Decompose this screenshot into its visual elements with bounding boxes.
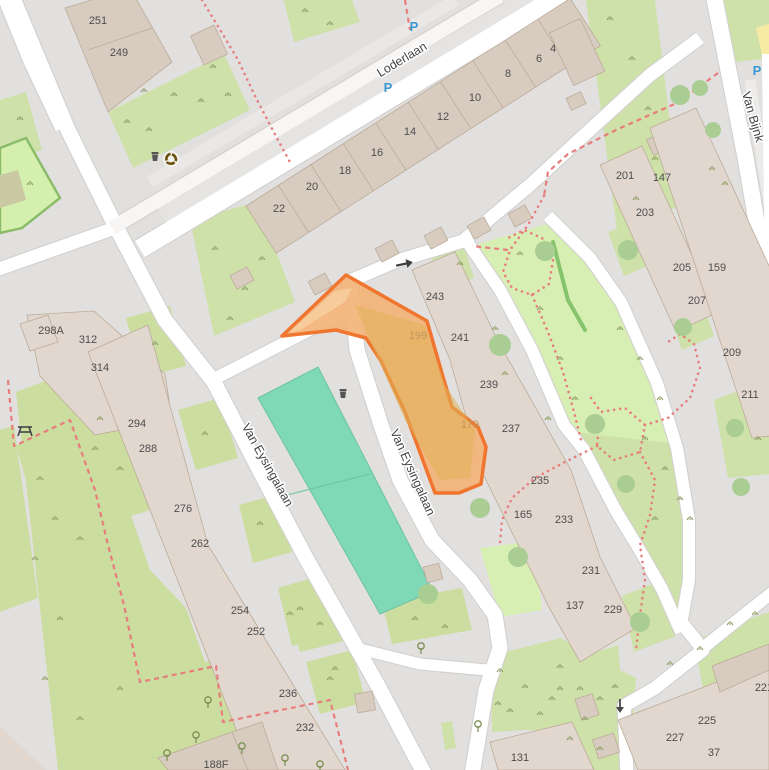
svg-text:16: 16 (371, 147, 383, 159)
svg-text:147: 147 (653, 172, 671, 184)
svg-text:276: 276 (174, 503, 192, 515)
svg-text:254: 254 (231, 605, 249, 617)
svg-text:207: 207 (688, 295, 706, 307)
svg-text:188F: 188F (203, 759, 228, 770)
svg-text:243: 243 (426, 291, 444, 303)
svg-text:205: 205 (673, 262, 691, 274)
svg-text:P: P (410, 19, 419, 34)
svg-text:165: 165 (514, 509, 532, 521)
svg-text:6: 6 (536, 53, 542, 65)
svg-text:237: 237 (502, 423, 520, 435)
svg-text:232: 232 (296, 722, 314, 734)
svg-text:179: 179 (461, 419, 479, 431)
svg-text:239: 239 (480, 379, 498, 391)
svg-text:294: 294 (128, 418, 146, 430)
svg-text:211: 211 (741, 389, 759, 401)
svg-text:P: P (384, 80, 393, 95)
svg-text:233: 233 (555, 514, 573, 526)
svg-text:201: 201 (616, 170, 634, 182)
svg-text:209: 209 (723, 347, 741, 359)
svg-text:203: 203 (636, 207, 654, 219)
svg-text:159: 159 (708, 262, 726, 274)
svg-text:18: 18 (339, 165, 351, 177)
svg-text:22: 22 (273, 203, 285, 215)
svg-text:241: 241 (451, 332, 469, 344)
svg-text:314: 314 (91, 362, 109, 374)
svg-text:262: 262 (191, 538, 209, 550)
svg-text:131: 131 (511, 752, 529, 764)
svg-text:P: P (753, 63, 762, 78)
svg-text:137: 137 (566, 600, 584, 612)
svg-text:10: 10 (469, 92, 481, 104)
svg-text:8: 8 (505, 68, 511, 80)
svg-text:249: 249 (110, 47, 128, 59)
svg-text:225: 225 (698, 715, 716, 727)
svg-text:199: 199 (409, 330, 427, 342)
svg-text:12: 12 (437, 111, 449, 123)
svg-text:252: 252 (247, 626, 265, 638)
svg-text:288: 288 (139, 443, 157, 455)
svg-text:229: 229 (604, 604, 622, 616)
svg-text:298A: 298A (38, 325, 64, 337)
svg-text:312: 312 (79, 334, 97, 346)
svg-text:235: 235 (531, 475, 549, 487)
svg-text:236: 236 (279, 688, 297, 700)
svg-text:20: 20 (306, 181, 318, 193)
svg-text:231: 231 (582, 565, 600, 577)
svg-text:4: 4 (550, 43, 556, 55)
svg-text:37: 37 (708, 747, 720, 759)
svg-text:221: 221 (755, 682, 769, 694)
svg-text:14: 14 (404, 126, 416, 138)
svg-text:251: 251 (89, 15, 107, 27)
svg-text:227: 227 (666, 732, 684, 744)
